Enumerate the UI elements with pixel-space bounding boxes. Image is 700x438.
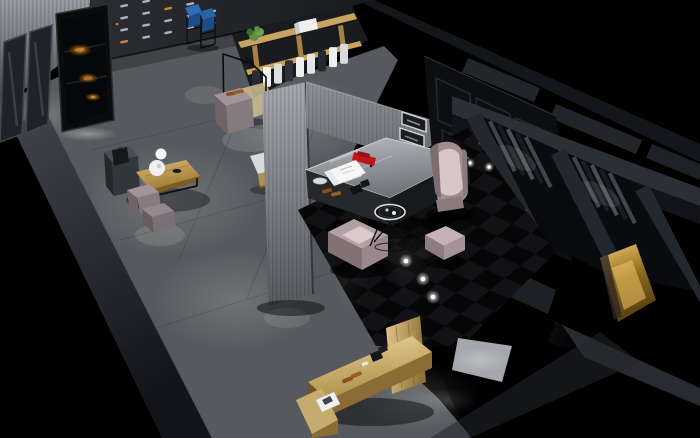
amber-lit-shoe-cabinet	[56, 4, 118, 141]
lit-shoe-shelf	[85, 93, 101, 101]
cup	[385, 208, 388, 211]
cup	[392, 211, 396, 215]
scene-canvas	[0, 0, 700, 438]
display-plate	[313, 178, 327, 184]
table-dish	[173, 169, 182, 173]
boutique-interior-render	[0, 0, 700, 438]
